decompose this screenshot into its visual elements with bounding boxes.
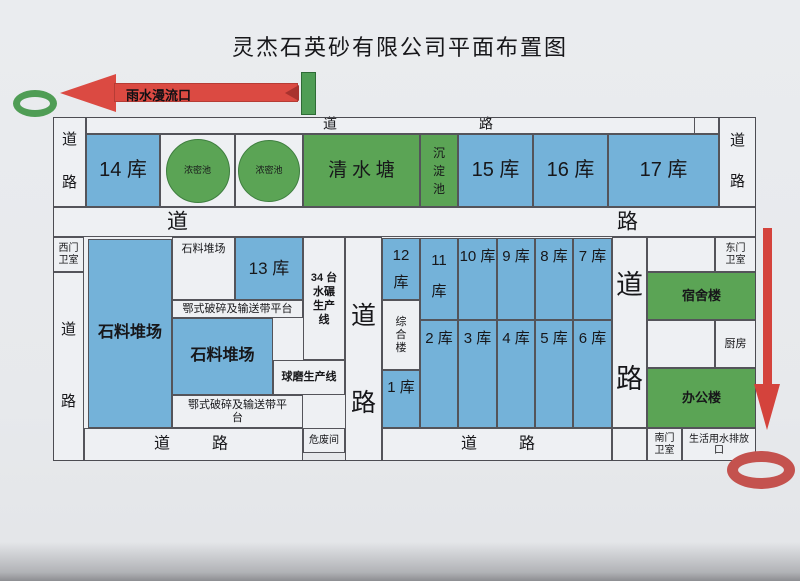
south-gate-guard-room: 南门 卫室 bbox=[647, 428, 682, 461]
road-column-central: 道 路 bbox=[345, 237, 382, 461]
road-label-dao: 道 bbox=[154, 435, 170, 453]
office-building: 办公楼 bbox=[647, 368, 756, 428]
road-strip-north: 道 路 bbox=[86, 117, 695, 134]
road-label-lu: 路 bbox=[212, 435, 228, 453]
page-title: 灵杰石英砂有限公司平面布置图 bbox=[0, 30, 800, 62]
ball-mill-line: 球磨生产线 bbox=[273, 360, 345, 395]
scanned-plant-layout-page: 灵杰石英砂有限公司平面布置图 雨水漫流口 道 路 道 路 14 库 浓密池 浓密… bbox=[0, 0, 800, 581]
road-label-dao: 道 bbox=[616, 270, 643, 301]
warehouse-6: 6 库 bbox=[573, 320, 612, 428]
road-label-lu: 路 bbox=[62, 175, 77, 192]
road-band-south-west: 道 路 bbox=[84, 428, 303, 461]
warehouse-1: 1 库 bbox=[382, 370, 420, 428]
rain-overflow-label: 雨水漫流口 bbox=[126, 85, 191, 104]
road-column-east-top: 道 路 bbox=[719, 117, 756, 207]
warehouse-5: 5 库 bbox=[535, 320, 573, 428]
green-ring-marker bbox=[13, 90, 57, 117]
stone-stockyard-small-label: 石料堆场 bbox=[172, 237, 235, 300]
stone-stockyard-large: 石料堆场 bbox=[88, 239, 172, 428]
road-label-dao: 道 bbox=[61, 322, 76, 339]
jaw-crusher-platform-2: 鄂式破碎及输送带平 台 bbox=[172, 395, 303, 428]
warehouse-15: 15 库 bbox=[458, 134, 533, 207]
warehouse-11: 11 库 bbox=[420, 238, 458, 320]
north-corner-cell bbox=[694, 117, 719, 134]
kitchen: 厨房 bbox=[715, 320, 756, 368]
warehouse-8: 8 库 bbox=[535, 238, 573, 320]
warehouse-17: 17 库 bbox=[608, 134, 719, 207]
thickener-pond-cell-2: 浓密池 bbox=[235, 134, 303, 207]
thickener-pond-2: 浓密池 bbox=[238, 140, 300, 202]
hazardous-waste-room: 危废间 bbox=[303, 428, 345, 453]
thickener-pond-1: 浓密池 bbox=[166, 139, 230, 203]
water-mill-line: 34 台 水碾 生产 线 bbox=[303, 237, 345, 360]
road-band-south-east: 道 路 bbox=[382, 428, 612, 461]
road-label-dao: 道 bbox=[461, 435, 477, 453]
complex-building: 综 合 楼 bbox=[382, 300, 420, 370]
warehouse-9: 9 库 bbox=[497, 238, 535, 320]
road-label-lu: 路 bbox=[519, 435, 535, 453]
road-column-west-mid: 道 路 bbox=[53, 272, 84, 461]
discharge-arrow-shaft bbox=[763, 228, 772, 386]
rain-arrow-head-icon bbox=[60, 74, 116, 112]
road-label-lu: 路 bbox=[616, 364, 643, 395]
warehouse-14: 14 库 bbox=[86, 134, 160, 207]
road-label-lu: 路 bbox=[351, 390, 376, 419]
red-ring-marker bbox=[727, 451, 795, 489]
warehouse-13: 13 库 bbox=[235, 237, 303, 300]
warehouse-12: 12 库 bbox=[382, 238, 420, 300]
green-outlet-bar bbox=[301, 72, 316, 115]
road-column-east-mid: 道 路 bbox=[612, 237, 647, 428]
road-label-dao: 道 bbox=[351, 303, 376, 332]
dormitory-building: 宿舍楼 bbox=[647, 272, 756, 320]
road-label-lu: 路 bbox=[479, 117, 493, 133]
discharge-arrow-head-icon bbox=[754, 384, 780, 430]
thickener-pond-cell-1: 浓密池 bbox=[160, 134, 235, 207]
west-gate-guard-room: 西门 卫室 bbox=[53, 237, 84, 272]
road-label-dao: 道 bbox=[62, 132, 77, 149]
scan-shadow bbox=[0, 542, 800, 581]
east-gate-guard-room: 东门 卫室 bbox=[715, 237, 756, 272]
road-label-lu: 路 bbox=[61, 394, 76, 411]
warehouse-3: 3 库 bbox=[458, 320, 497, 428]
road-column-west-top: 道 路 bbox=[53, 117, 86, 207]
small-arrow-icon bbox=[285, 85, 299, 101]
warehouse-4: 4 库 bbox=[497, 320, 535, 428]
east-empty-cell-2 bbox=[647, 320, 715, 368]
road-band-middle: 道 路 bbox=[53, 207, 756, 237]
clear-water-pond: 清 水 塘 bbox=[303, 134, 420, 207]
warehouse-2: 2 库 bbox=[420, 320, 458, 428]
warehouse-7: 7 库 bbox=[573, 238, 612, 320]
east-empty-cell bbox=[647, 237, 715, 272]
jaw-crusher-platform-1: 鄂式破碎及输送带平台 bbox=[172, 300, 303, 318]
road-label-lu: 路 bbox=[730, 174, 745, 191]
sedimentation-pond: 沉 淀 池 bbox=[420, 134, 458, 207]
road-label-dao: 道 bbox=[730, 133, 745, 150]
stone-stockyard-2: 石料堆场 bbox=[172, 318, 273, 395]
road-label-lu: 路 bbox=[617, 209, 638, 233]
road-label-dao: 道 bbox=[323, 117, 337, 133]
warehouse-10: 10 库 bbox=[458, 238, 497, 320]
road-label-dao: 道 bbox=[167, 209, 188, 233]
warehouse-16: 16 库 bbox=[533, 134, 608, 207]
south-band-gap-cell bbox=[612, 428, 647, 461]
